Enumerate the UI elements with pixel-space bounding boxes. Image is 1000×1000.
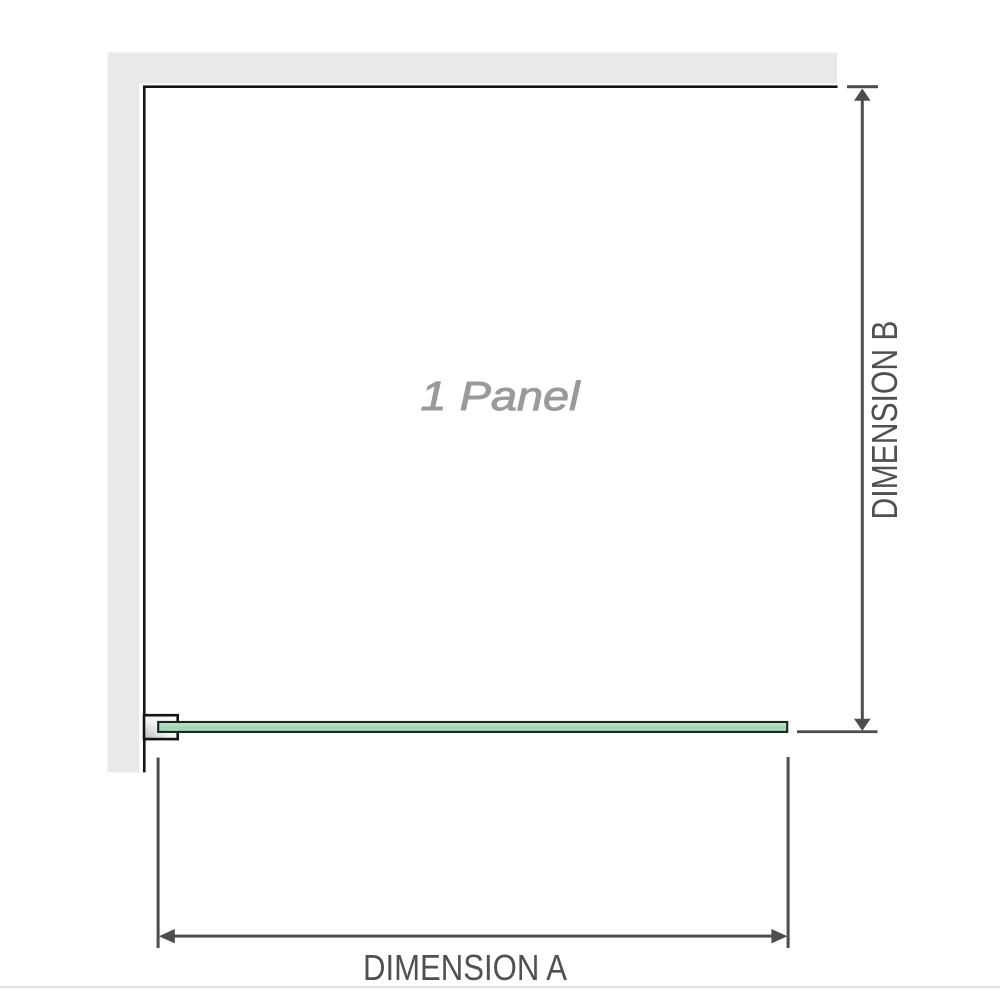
svg-text:1 Panel: 1 Panel: [421, 373, 582, 419]
svg-text:DIMENSION A: DIMENSION A: [363, 947, 568, 988]
svg-text:DIMENSION B: DIMENSION B: [864, 321, 905, 520]
